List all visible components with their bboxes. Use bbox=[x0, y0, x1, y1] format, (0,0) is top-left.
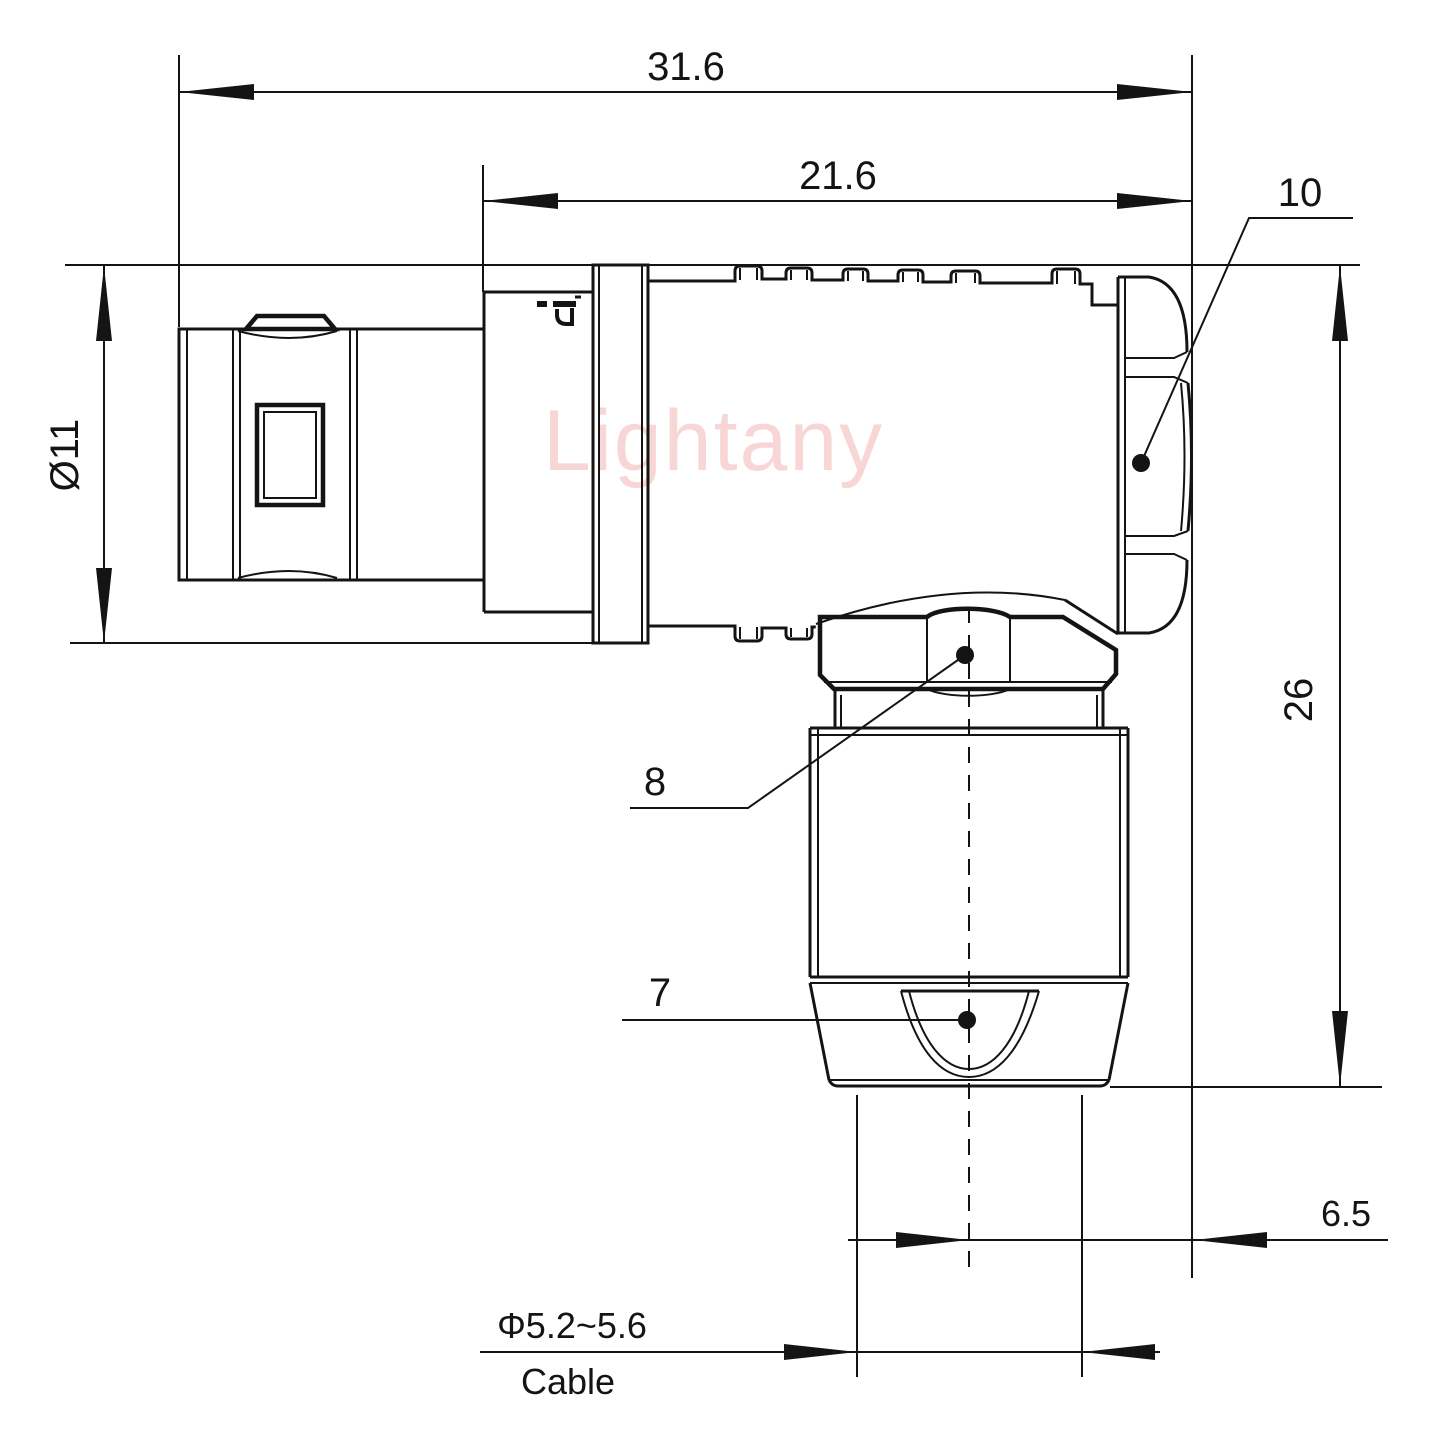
dimension-body-length: 21.6 bbox=[483, 154, 1192, 209]
dimension-shell-diameter: Ø11 bbox=[43, 266, 112, 643]
dimension-axis-to-rear: 6.5 bbox=[848, 1193, 1388, 1248]
technical-drawing-page: Lightany bbox=[0, 0, 1440, 1440]
connector-technical-drawing: Lightany bbox=[0, 0, 1440, 1440]
callout-rear-nut: 10 bbox=[1132, 171, 1353, 472]
leader-dot-clamp-sleeve bbox=[958, 1011, 976, 1029]
arrowhead-top bbox=[1332, 266, 1348, 341]
latch-window bbox=[257, 405, 323, 505]
body-logo-mark bbox=[537, 297, 581, 324]
arrowhead-left bbox=[179, 84, 254, 100]
cable-word-label: Cable bbox=[521, 1361, 615, 1402]
callout-clamp-sleeve-label: 7 bbox=[649, 971, 671, 1015]
dim-overall-height-label: 26 bbox=[1277, 678, 1321, 723]
dimension-overall-length: 31.6 bbox=[179, 45, 1192, 100]
rear-hex-cap bbox=[1118, 277, 1192, 633]
latch-key-bump bbox=[246, 316, 335, 329]
leader-dot-rear-nut bbox=[1132, 454, 1150, 472]
arrowhead-bottom bbox=[96, 568, 112, 643]
arrowhead-right bbox=[1117, 193, 1192, 209]
dimension-cable-diameter: Φ5.2~5.6 Cable bbox=[480, 1305, 1160, 1402]
arrowhead-left bbox=[483, 193, 558, 209]
dim-body-length-label: 21.6 bbox=[799, 154, 877, 198]
arrowhead-right bbox=[1194, 1232, 1267, 1248]
arrowhead-bottom bbox=[1332, 1011, 1348, 1086]
arrowhead-left bbox=[784, 1344, 857, 1360]
callout-rear-nut-label: 10 bbox=[1278, 171, 1323, 215]
dim-cable-diameter-label: Φ5.2~5.6 bbox=[497, 1305, 647, 1346]
dim-shell-diameter-label: Ø11 bbox=[43, 419, 87, 492]
arrowhead-right bbox=[1082, 1344, 1155, 1360]
arrowhead-top bbox=[96, 266, 112, 341]
front-plug-tube bbox=[179, 316, 484, 580]
callout-clamp-sleeve: 7 bbox=[622, 971, 976, 1029]
dimension-overall-height: 26 bbox=[1277, 266, 1348, 1086]
extension-lines bbox=[65, 55, 1382, 1377]
callout-coupling-nut-label: 8 bbox=[644, 760, 666, 804]
arrowhead-right bbox=[1117, 84, 1192, 100]
arrowhead-left bbox=[896, 1232, 969, 1248]
dim-overall-length-label: 31.6 bbox=[647, 45, 725, 89]
leader-dot-coupling-nut bbox=[956, 646, 974, 664]
dim-axis-to-rear-label: 6.5 bbox=[1321, 1193, 1371, 1234]
